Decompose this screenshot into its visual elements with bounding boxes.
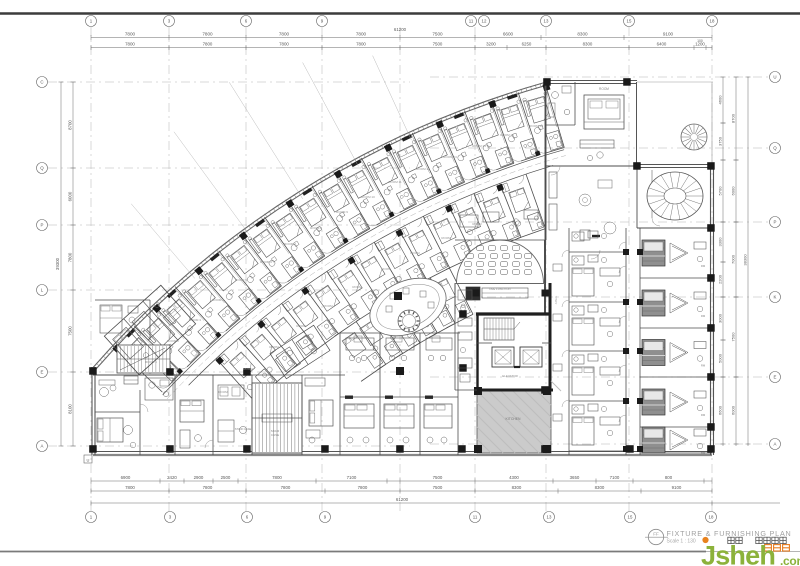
svg-text:ROOM: ROOM [381, 267, 391, 271]
svg-text:7500: 7500 [68, 326, 73, 336]
svg-text:RM: RM [701, 264, 706, 268]
svg-text:7000: 7000 [731, 254, 736, 264]
svg-text:P: P [41, 223, 44, 228]
svg-text:100: 100 [697, 39, 703, 43]
svg-text:9100: 9100 [663, 32, 674, 37]
svg-text:5000: 5000 [718, 353, 723, 363]
svg-text:E: E [41, 370, 44, 375]
svg-text:U: U [773, 75, 776, 80]
svg-text:7500: 7500 [433, 485, 443, 490]
svg-text:3300: 3300 [718, 237, 723, 247]
svg-text:ROOM: ROOM [352, 285, 362, 289]
svg-text:800: 800 [665, 475, 673, 480]
svg-text:15: 15 [627, 19, 632, 24]
svg-text:7800: 7800 [202, 32, 213, 37]
svg-text:2420: 2420 [167, 475, 177, 480]
svg-text:A: A [41, 444, 44, 449]
svg-text:ROOM: ROOM [296, 324, 306, 328]
svg-text:RM: RM [701, 314, 706, 318]
svg-text:FF: FF [653, 532, 659, 537]
svg-text:61200: 61200 [396, 497, 409, 502]
svg-text:ROOM 9: ROOM 9 [336, 210, 348, 214]
svg-text:2500: 2500 [221, 475, 231, 480]
svg-text:11: 11 [469, 19, 474, 24]
svg-text:7100: 7100 [347, 475, 357, 480]
svg-text:13: 13 [544, 19, 549, 24]
svg-text:6000: 6000 [731, 186, 736, 196]
svg-text:7800: 7800 [125, 485, 135, 490]
svg-text:ROOM 4: ROOM 4 [212, 298, 224, 302]
svg-text:Q: Q [773, 146, 777, 151]
svg-text:12: 12 [482, 19, 487, 24]
svg-text:ROOM 6: ROOM 6 [260, 260, 272, 264]
svg-text:RM: RM [701, 364, 706, 368]
svg-text:Scale 1 : 130: Scale 1 : 130 [667, 539, 696, 545]
svg-text:6250: 6250 [522, 42, 532, 47]
svg-text:7800: 7800 [279, 42, 289, 47]
svg-text:Q: Q [40, 166, 44, 171]
svg-text:7800: 7800 [125, 32, 136, 37]
svg-text:7500: 7500 [433, 42, 443, 47]
svg-text:.com: .com [780, 554, 800, 566]
svg-text:2900: 2900 [194, 475, 204, 480]
svg-text:7800: 7800 [356, 32, 367, 37]
svg-text:8300: 8300 [583, 42, 593, 47]
svg-text:RM: RM [701, 413, 706, 417]
svg-text:18: 18 [709, 515, 714, 520]
svg-text:ROOM 8: ROOM 8 [310, 226, 322, 230]
svg-text:8100: 8100 [68, 404, 73, 414]
svg-text:3650: 3650 [570, 475, 580, 480]
svg-text:ROOM: ROOM [599, 87, 609, 91]
svg-text:ROOM: ROOM [243, 367, 253, 371]
svg-text:6600: 6600 [718, 405, 723, 415]
svg-text:7800: 7800 [125, 42, 135, 47]
svg-text:6600: 6600 [503, 32, 514, 37]
svg-text:9100: 9100 [672, 485, 682, 490]
svg-text:7800: 7800 [272, 475, 282, 480]
svg-text:4600: 4600 [718, 95, 723, 105]
svg-text:ROOM: ROOM [472, 222, 482, 226]
svg-text:ROOM 12: ROOM 12 [416, 167, 430, 171]
svg-text:E: E [774, 375, 777, 380]
svg-text:7500: 7500 [432, 32, 443, 37]
svg-text:7800: 7800 [356, 42, 366, 47]
svg-text:CASE: CASE [271, 433, 279, 437]
svg-text:8700: 8700 [68, 120, 73, 130]
svg-text:8300: 8300 [512, 485, 522, 490]
svg-text:11: 11 [473, 515, 478, 520]
svg-text:ROOM: ROOM [441, 236, 451, 240]
svg-text:7500: 7500 [433, 475, 443, 480]
svg-text:13: 13 [547, 515, 552, 520]
svg-text:8300: 8300 [595, 485, 605, 490]
svg-text:15: 15 [628, 515, 633, 520]
svg-text:5700: 5700 [718, 186, 723, 196]
svg-text:7800: 7800 [203, 485, 213, 490]
svg-text:ROOM 14: ROOM 14 [472, 144, 486, 148]
svg-text:7800: 7800 [281, 485, 291, 490]
svg-text:8300: 8300 [577, 32, 588, 37]
svg-text:P: P [774, 220, 777, 225]
svg-text:4300: 4300 [509, 475, 519, 480]
svg-text:K: K [774, 295, 777, 300]
svg-text:3200: 3200 [486, 42, 496, 47]
svg-text:ROOM 15: ROOM 15 [500, 133, 514, 137]
svg-text:6000: 6000 [68, 191, 73, 201]
svg-text:ROOM: ROOM [410, 251, 420, 255]
svg-text:39300: 39300 [55, 257, 60, 270]
svg-text:3750: 3750 [718, 136, 723, 146]
svg-text:ROOM 16: ROOM 16 [529, 124, 543, 128]
svg-text:KITCHEN: KITCHEN [506, 417, 521, 421]
svg-text:6400: 6400 [657, 42, 667, 47]
svg-text:6900: 6900 [121, 475, 131, 480]
svg-text:7800: 7800 [68, 252, 73, 262]
svg-text:8700: 8700 [731, 113, 736, 123]
svg-text:ROOM 5: ROOM 5 [235, 278, 247, 282]
svg-text:7800: 7800 [358, 485, 368, 490]
svg-text:C: C [40, 80, 43, 85]
svg-text:FIXTURE & FURNISHING PLAN: FIXTURE & FURNISHING PLAN [667, 529, 792, 538]
svg-text:A: A [774, 442, 777, 447]
svg-text:ROOM 7: ROOM 7 [284, 242, 296, 246]
svg-text:7800: 7800 [203, 42, 213, 47]
svg-text:AISLE: AISLE [554, 296, 558, 305]
svg-text:61200: 61200 [394, 27, 407, 32]
svg-text:STAIR CASE: STAIR CASE [235, 427, 252, 431]
svg-text:3000: 3000 [718, 313, 723, 323]
svg-text:ROOM: ROOM [323, 304, 333, 308]
svg-text:ELEVATOR: ELEVATOR [502, 374, 518, 378]
svg-text:7800: 7800 [279, 32, 290, 37]
svg-text:PRE FUNCTION: PRE FUNCTION [490, 287, 511, 291]
svg-text:6000: 6000 [731, 405, 736, 415]
svg-text:2200: 2200 [718, 274, 723, 284]
svg-text:ROOM 11: ROOM 11 [388, 180, 402, 184]
svg-text:U: U [87, 458, 90, 463]
svg-text:7500: 7500 [731, 332, 736, 342]
svg-text:Jsheh: Jsheh [701, 541, 775, 566]
svg-text:7100: 7100 [610, 475, 620, 480]
svg-text:ROOM 10: ROOM 10 [361, 195, 375, 199]
svg-text:ROOM 13: ROOM 13 [443, 155, 457, 159]
svg-text:18: 18 [710, 19, 715, 24]
svg-text:38300: 38300 [743, 254, 748, 266]
svg-text:ROOM: ROOM [218, 390, 228, 394]
